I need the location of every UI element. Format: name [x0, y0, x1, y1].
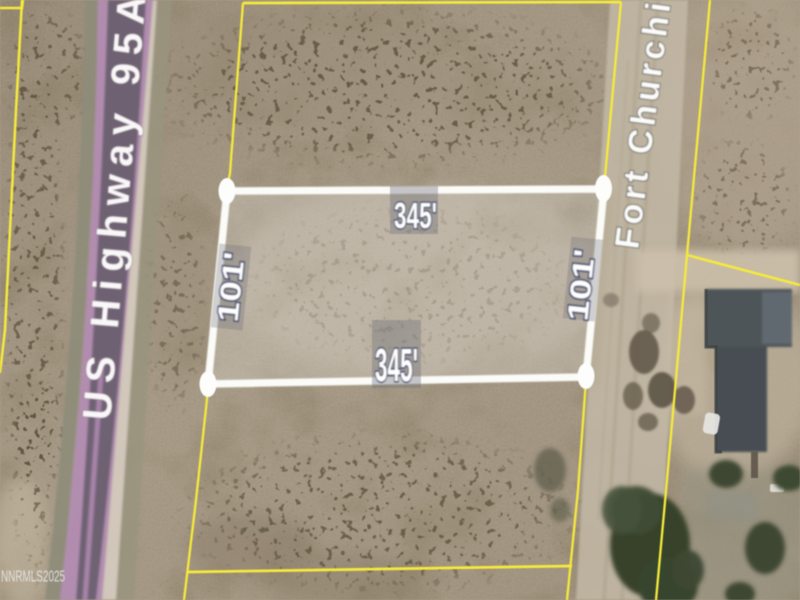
svg-text:345': 345' [394, 195, 437, 236]
svg-text:345': 345' [375, 339, 418, 391]
svg-text:NNRMLS2025: NNRMLS2025 [1, 569, 65, 586]
